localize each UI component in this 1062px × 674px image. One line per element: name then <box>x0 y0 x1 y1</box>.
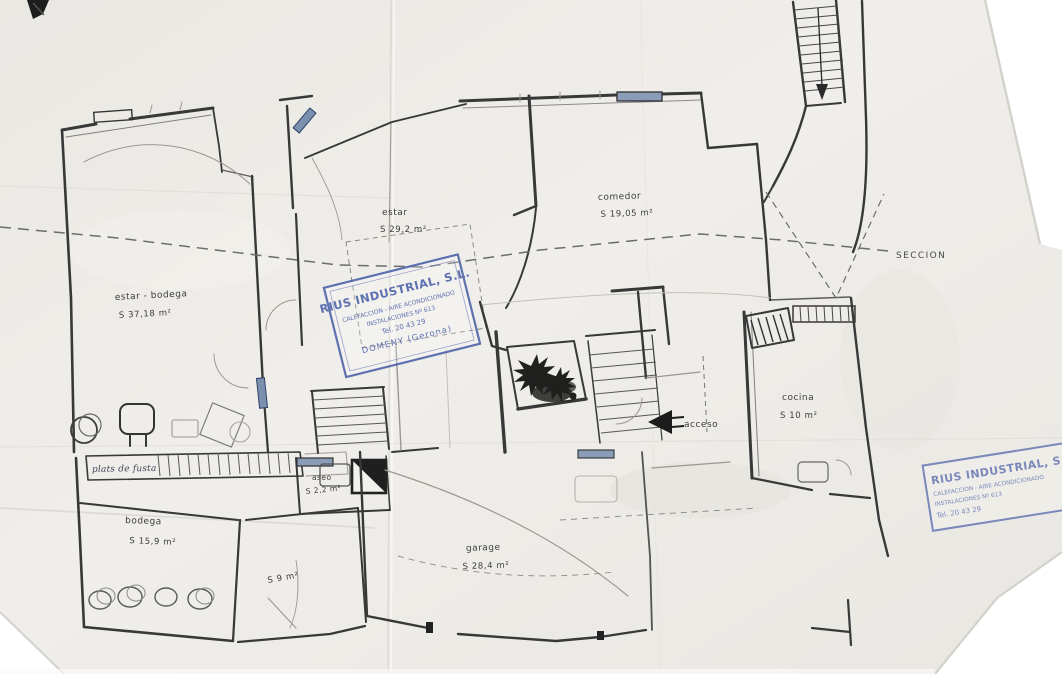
label-cocina: cocina <box>782 393 814 403</box>
area-comedor: S 19,05 m² <box>600 208 653 220</box>
floor-plan-drawing: RIUS INDUSTRIAL, S.L. CALEFACCION - AIRE… <box>0 0 1062 674</box>
window-mark <box>617 92 662 101</box>
window-mark <box>578 450 614 458</box>
label-aseo: aseo <box>312 473 332 482</box>
paper-sheet <box>0 0 1062 674</box>
area-bodega: S 15,9 m² <box>129 536 176 548</box>
shower-symbol <box>352 460 386 493</box>
handwritten-note: plats de fusta <box>92 464 157 475</box>
label-acceso: acceso <box>684 420 718 430</box>
area-garage: S 28,4 m² <box>462 560 509 572</box>
label-estar: estar <box>382 208 407 218</box>
label-seccion: SECCION <box>896 251 946 261</box>
area-estar: S 29,2 m² <box>380 225 427 235</box>
label-bodega: bodega <box>125 516 162 527</box>
window-mark <box>297 458 333 466</box>
label-garage: garage <box>466 543 501 554</box>
label-comedor: comedor <box>598 191 642 203</box>
scanned-floor-plan: RIUS INDUSTRIAL, S.L. CALEFACCION - AIRE… <box>0 0 1062 674</box>
area-cocina: S 10 m² <box>780 411 818 421</box>
